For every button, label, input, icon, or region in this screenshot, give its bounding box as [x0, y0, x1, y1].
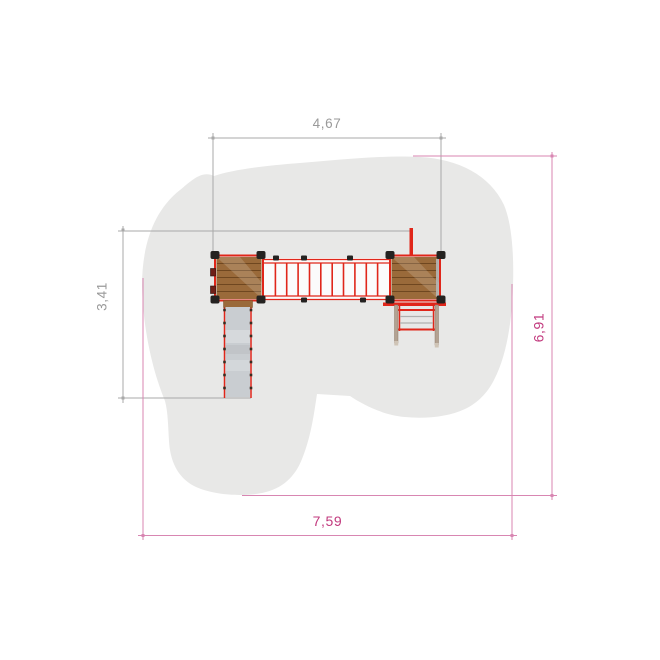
corner-bracket: [211, 251, 220, 259]
dimension-label-top: 4,67: [213, 116, 441, 131]
ladder-rail-left: [395, 305, 399, 343]
corner-bracket: [257, 296, 266, 304]
corner-bracket: [437, 296, 446, 304]
ladder-foot: [394, 341, 398, 346]
tick: [122, 229, 125, 232]
plan-svg: [0, 0, 660, 660]
bridge-knob: [301, 256, 307, 261]
tick: [212, 137, 215, 140]
corner-bracket: [437, 251, 446, 259]
dimension-label-bottom: 7,59: [143, 514, 512, 529]
plan-drawing: 4,67 3,41 6,91 7,59: [0, 0, 660, 660]
bridge-deck: [264, 258, 389, 300]
tick: [511, 534, 514, 537]
hinge: [211, 286, 216, 294]
safety-zone: [142, 157, 513, 495]
platform-edge-strip: [436, 259, 439, 297]
bridge-knob: [360, 298, 366, 303]
hinge: [211, 269, 216, 277]
tick: [551, 494, 554, 497]
tick: [122, 397, 125, 400]
bridge-knob: [347, 256, 353, 261]
bridge-knob: [301, 298, 307, 303]
tick: [440, 137, 443, 140]
left-platform: [217, 257, 263, 299]
right-platform: [392, 257, 440, 299]
bridge-knob: [273, 256, 279, 261]
slide: [223, 301, 252, 398]
fireman-pole: [410, 228, 414, 256]
tick: [142, 534, 145, 537]
corner-bracket: [386, 251, 395, 259]
dimension-label-left: 3,41: [95, 267, 110, 327]
corner-bracket: [211, 296, 220, 304]
slide-entrance: [224, 301, 253, 308]
ladder-rail-right: [435, 305, 439, 345]
ladder-foot: [435, 343, 439, 348]
dimension-label-right: 6,91: [532, 298, 547, 358]
tick: [551, 155, 554, 158]
corner-bracket: [257, 251, 266, 259]
corner-bracket: [386, 296, 395, 304]
